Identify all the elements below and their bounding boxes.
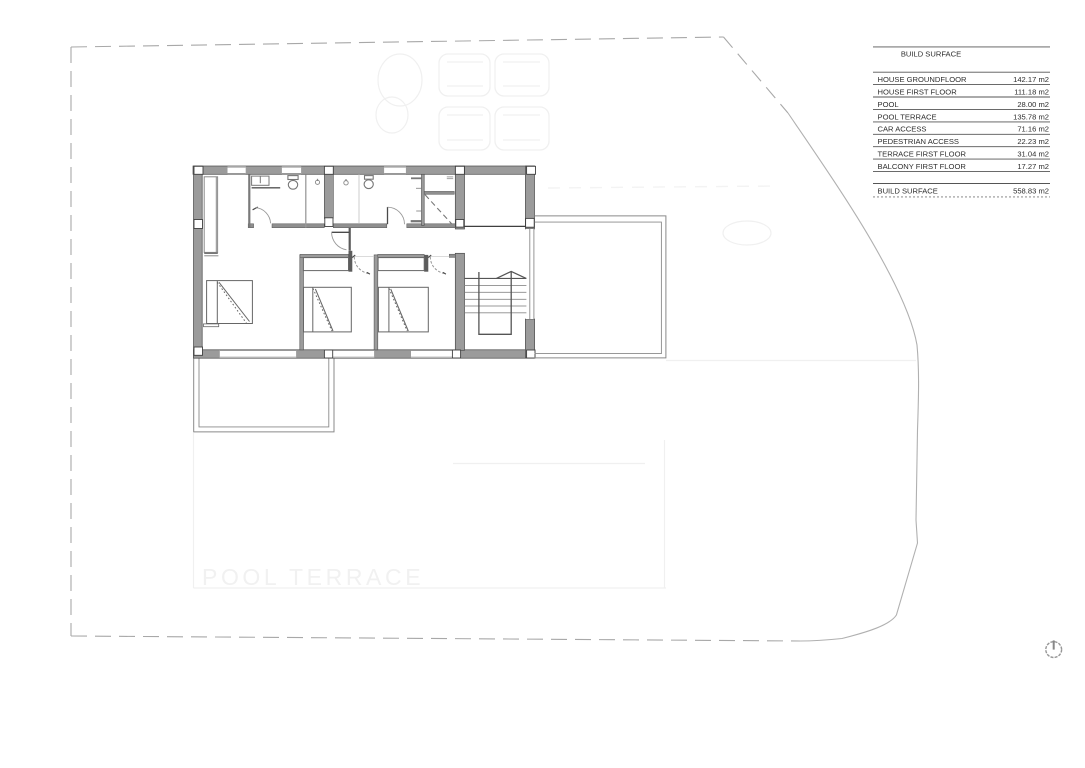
svg-text:22.23 m2: 22.23 m2 (1017, 137, 1049, 146)
svg-text:558.83 m2: 558.83 m2 (1013, 187, 1049, 196)
svg-text:CAR ACCESS: CAR ACCESS (878, 125, 927, 134)
svg-text:HOUSE FIRST FLOOR: HOUSE FIRST FLOOR (878, 87, 958, 96)
svg-text:POOL TERRACE: POOL TERRACE (202, 564, 424, 590)
svg-text:71.16 m2: 71.16 m2 (1017, 125, 1049, 134)
svg-text:HOUSE GROUNDFLOOR: HOUSE GROUNDFLOOR (878, 75, 968, 84)
svg-text:BUILD SURFACE: BUILD SURFACE (878, 187, 938, 196)
svg-text:142.17 m2: 142.17 m2 (1013, 75, 1049, 84)
svg-text:POOL: POOL (878, 100, 899, 109)
svg-text:111.18 m2: 111.18 m2 (1014, 87, 1049, 96)
svg-text:31.04 m2: 31.04 m2 (1017, 150, 1049, 159)
svg-text:PEDESTRIAN ACCESS: PEDESTRIAN ACCESS (878, 137, 959, 146)
svg-text:BUILD SURFACE: BUILD SURFACE (901, 50, 961, 59)
svg-text:BALCONY FIRST FLOOR: BALCONY FIRST FLOOR (878, 162, 967, 171)
svg-text:TERRACE FIRST FLOOR: TERRACE FIRST FLOOR (878, 150, 967, 159)
svg-text:17.27 m2: 17.27 m2 (1017, 162, 1049, 171)
svg-text:POOL TERRACE: POOL TERRACE (878, 112, 937, 121)
svg-text:135.78 m2: 135.78 m2 (1013, 112, 1049, 121)
svg-text:28.00 m2: 28.00 m2 (1017, 100, 1049, 109)
